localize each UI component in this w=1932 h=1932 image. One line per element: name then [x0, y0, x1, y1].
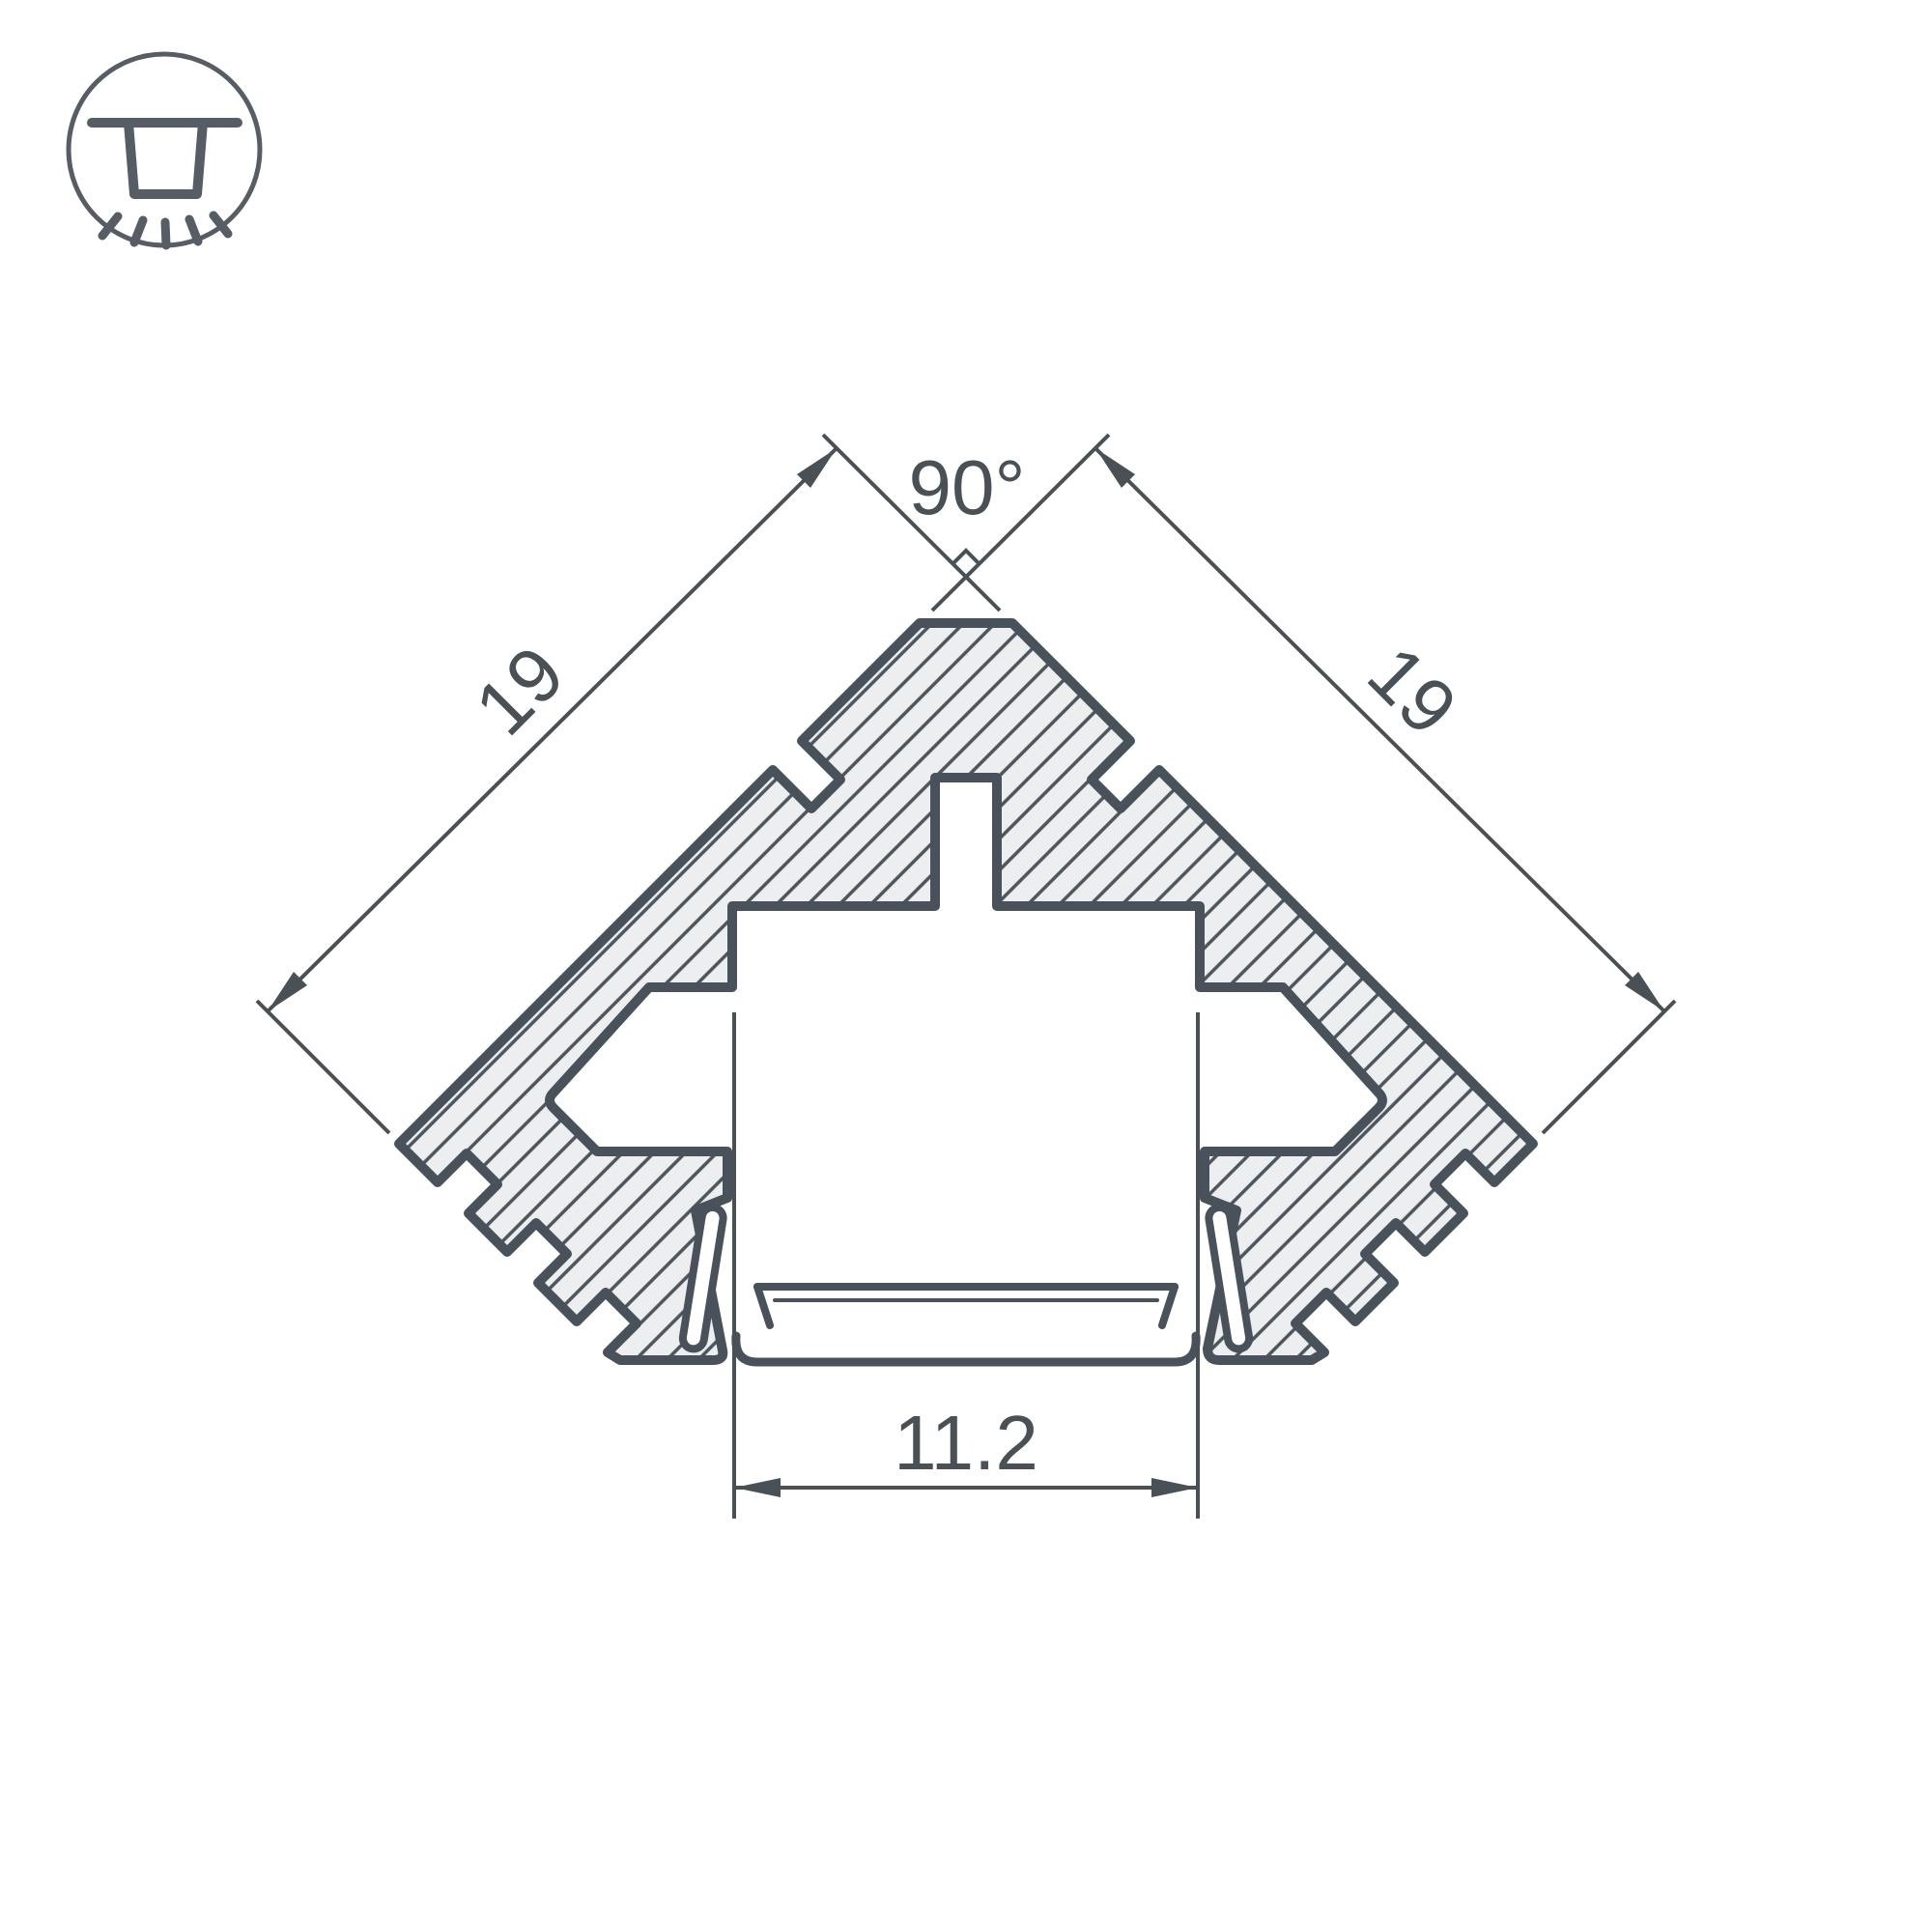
dimension-label-opening-width: 11.2 — [894, 1400, 1038, 1486]
profile-drawing: 90° 19 19 11.2 — [0, 0, 1932, 1932]
canvas-background — [0, 0, 1932, 1932]
dimension-label-angle: 90° — [909, 444, 1026, 530]
